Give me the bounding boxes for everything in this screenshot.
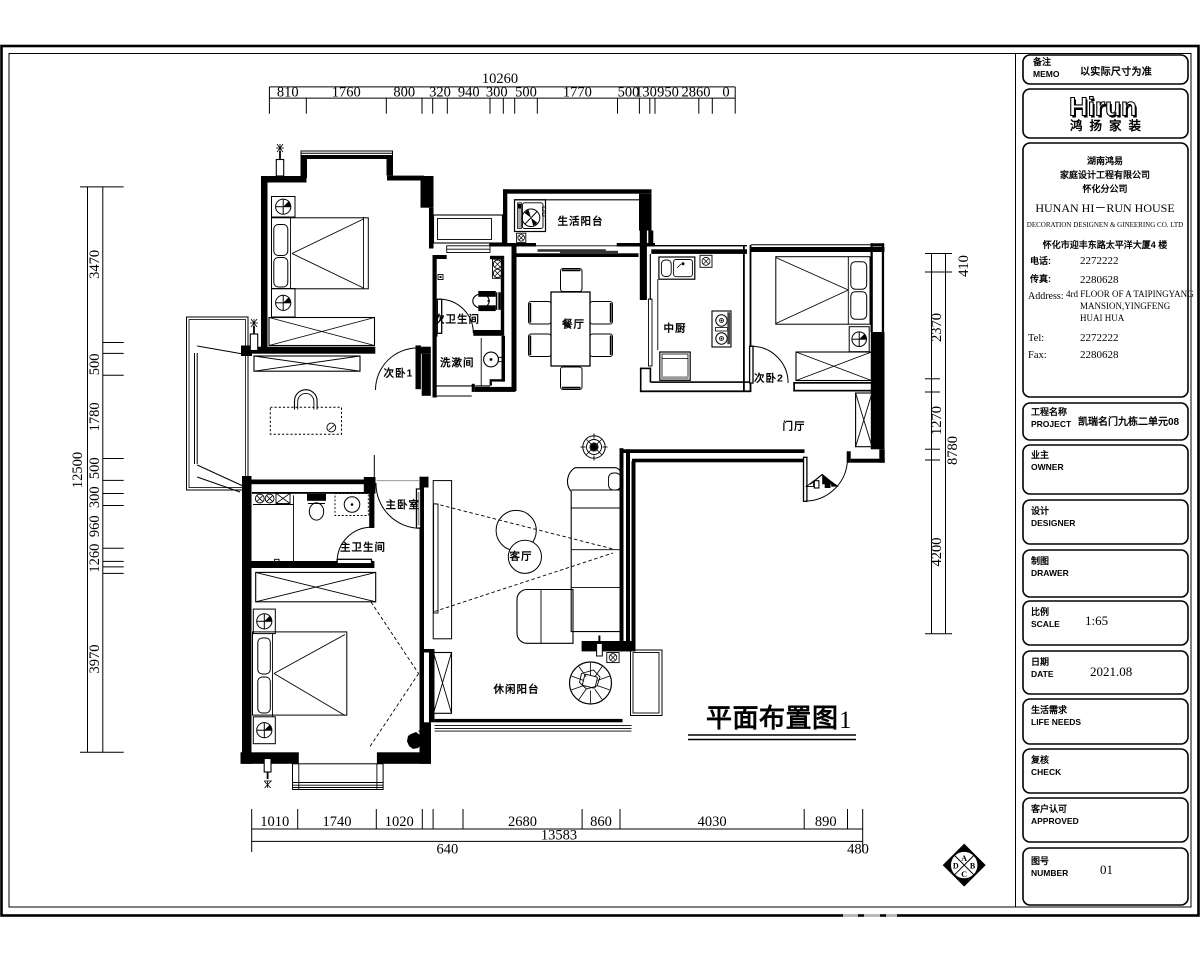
svg-text:HUAI HUA: HUAI HUA [1080, 313, 1125, 323]
svg-text:2680: 2680 [508, 814, 537, 830]
svg-text:DECORATION DESIGNEN & GINEERIN: DECORATION DESIGNEN & GINEERING CO. LTD [1027, 221, 1183, 229]
svg-text:餐厅: 餐厅 [561, 318, 585, 331]
svg-text:3470: 3470 [87, 250, 103, 279]
svg-text:860: 860 [590, 814, 612, 830]
svg-text:主卫生间: 主卫生间 [340, 541, 386, 554]
svg-text:Tel:: Tel: [1028, 333, 1044, 344]
svg-text:810: 810 [277, 85, 299, 101]
svg-text:客户认可: 客户认可 [1030, 803, 1067, 814]
svg-text:2860: 2860 [682, 85, 711, 101]
svg-text:A: A [961, 854, 967, 863]
svg-text:Address:: Address: [1028, 291, 1064, 302]
svg-text:工程名称: 工程名称 [1031, 406, 1067, 417]
svg-text:主卧室: 主卧室 [386, 498, 421, 511]
svg-text:以实际尺寸为准: 以实际尺寸为准 [1080, 65, 1152, 78]
svg-text:DESIGNER: DESIGNER [1031, 518, 1075, 528]
svg-text:APPROVED: APPROVED [1031, 816, 1079, 826]
svg-text:图号: 图号 [1031, 856, 1049, 866]
svg-text:生活阳台: 生活阳台 [558, 215, 604, 228]
svg-text:洗漱间: 洗漱间 [440, 356, 475, 369]
svg-text:960: 960 [87, 515, 103, 537]
svg-text:320: 320 [429, 85, 451, 101]
svg-text:Hirun: Hirun [1069, 92, 1137, 122]
svg-text:2280628: 2280628 [1080, 349, 1119, 361]
svg-text:1: 1 [839, 707, 852, 734]
svg-text:950: 950 [657, 85, 679, 101]
svg-text:300: 300 [87, 486, 103, 508]
svg-text:DRAWER: DRAWER [1031, 568, 1069, 578]
svg-text:410: 410 [956, 255, 972, 277]
svg-text:2272222: 2272222 [1080, 332, 1119, 344]
svg-text:B: B [970, 862, 976, 871]
svg-text:休闲阳台: 休闲阳台 [493, 683, 540, 696]
svg-text:D: D [953, 862, 959, 871]
svg-text:SCALE: SCALE [1031, 619, 1060, 629]
svg-text:01: 01 [1100, 862, 1113, 877]
svg-text:1740: 1740 [323, 814, 352, 830]
svg-text:13583: 13583 [541, 828, 577, 844]
svg-text:480: 480 [847, 842, 869, 858]
svg-text:制图: 制图 [1031, 555, 1049, 566]
svg-text:设计: 设计 [1031, 505, 1049, 516]
svg-text:传真:: 传真: [1029, 273, 1051, 284]
svg-text:怀化分公司: 怀化分公司 [1082, 183, 1127, 194]
svg-text:生活需求: 生活需求 [1031, 704, 1068, 715]
svg-text:凯瑞名门九栋二单元08: 凯瑞名门九栋二单元08 [1078, 415, 1180, 428]
svg-text:门厅: 门厅 [783, 420, 806, 433]
svg-text:1770: 1770 [563, 85, 592, 101]
svg-text:890: 890 [815, 814, 837, 830]
svg-text:次卫生间: 次卫生间 [434, 313, 480, 326]
svg-text:MANSION,YINGFENG: MANSION,YINGFENG [1080, 301, 1171, 311]
svg-text:1:65: 1:65 [1085, 613, 1108, 628]
svg-text:湖南鸿易: 湖南鸿易 [1087, 155, 1123, 166]
svg-text:电话:: 电话: [1030, 255, 1051, 266]
svg-text:备注: 备注 [1032, 56, 1051, 67]
svg-text:怀化市迎丰东路太平洋大厦4 楼: 怀化市迎丰东路太平洋大厦4 楼 [1043, 239, 1168, 250]
svg-text:MEMO: MEMO [1033, 69, 1060, 79]
svg-text:平面布置图: 平面布置图 [706, 703, 839, 733]
svg-text:鸿扬家装: 鸿扬家装 [1070, 118, 1148, 133]
svg-text:940: 940 [458, 85, 480, 101]
svg-text:4200: 4200 [929, 538, 945, 567]
svg-text:DATE: DATE [1031, 669, 1054, 679]
svg-text:1020: 1020 [385, 814, 414, 830]
svg-text:2272222: 2272222 [1080, 255, 1119, 267]
svg-text:OWNER: OWNER [1031, 462, 1064, 472]
svg-text:500: 500 [87, 354, 103, 376]
svg-text:C: C [961, 870, 967, 879]
svg-text:500: 500 [515, 85, 537, 101]
svg-text:130: 130 [635, 85, 657, 101]
svg-text:比例: 比例 [1031, 606, 1049, 617]
svg-text:LIFE NEEDS: LIFE NEEDS [1031, 717, 1081, 727]
svg-text:中厨: 中厨 [664, 322, 687, 335]
svg-text:4rd FLOOR OF A TAIPINGYANG: 4rd FLOOR OF A TAIPINGYANG [1066, 289, 1194, 299]
svg-text:8780: 8780 [945, 436, 961, 465]
svg-text:PROJECT: PROJECT [1031, 419, 1072, 429]
svg-text:12500: 12500 [70, 452, 86, 488]
svg-text:4030: 4030 [698, 814, 727, 830]
svg-text:业主: 业主 [1031, 449, 1049, 460]
svg-text:500: 500 [87, 457, 103, 479]
svg-text:2370: 2370 [929, 313, 945, 342]
svg-text:2021.08: 2021.08 [1090, 664, 1132, 679]
svg-text:1260: 1260 [87, 544, 103, 573]
svg-text:HUNAN HI－RUN HOUSE: HUNAN HI－RUN HOUSE [1035, 201, 1174, 215]
svg-text:3970: 3970 [87, 645, 103, 674]
svg-text:NUMBER: NUMBER [1031, 868, 1068, 878]
svg-text:次卧2: 次卧2 [754, 372, 784, 385]
svg-text:800: 800 [393, 85, 415, 101]
svg-text:次卧1: 次卧1 [384, 367, 414, 380]
svg-text:CHECK: CHECK [1031, 767, 1062, 777]
svg-text:640: 640 [437, 842, 459, 858]
svg-text:0: 0 [722, 85, 729, 101]
svg-text:300: 300 [486, 85, 508, 101]
svg-text:2280628: 2280628 [1080, 274, 1119, 286]
svg-text:1010: 1010 [260, 814, 289, 830]
svg-text:家庭设计工程有限公司: 家庭设计工程有限公司 [1060, 169, 1150, 180]
svg-text:客厅: 客厅 [509, 550, 533, 563]
svg-text:1760: 1760 [332, 85, 361, 101]
svg-text:复核: 复核 [1030, 754, 1049, 765]
svg-text:日期: 日期 [1031, 656, 1049, 667]
svg-text:1270: 1270 [929, 406, 945, 435]
svg-text:Fax:: Fax: [1028, 350, 1047, 361]
svg-text:1780: 1780 [87, 402, 103, 431]
